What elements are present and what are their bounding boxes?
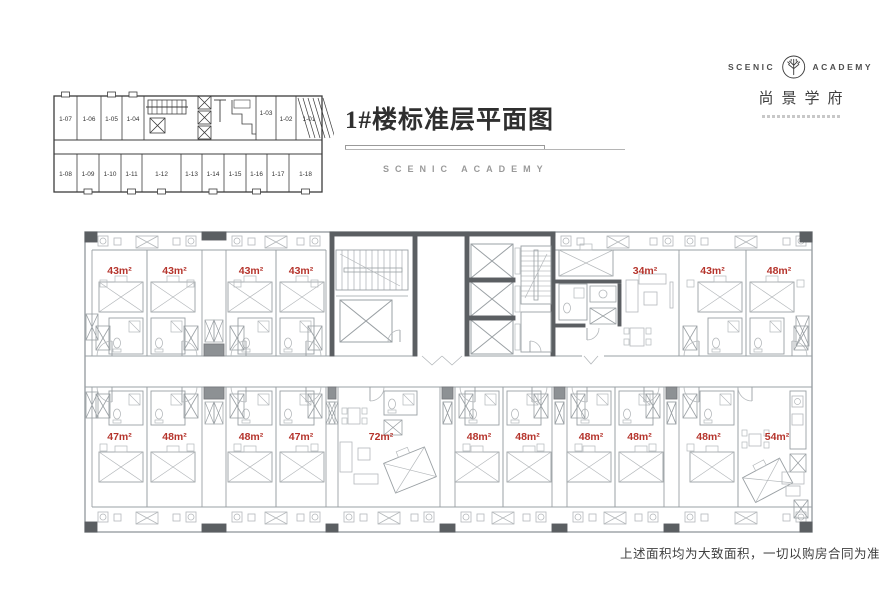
room-area-label: 54m² xyxy=(765,431,790,443)
keyplan-stair-icon xyxy=(146,100,188,114)
room-area-label: 48m² xyxy=(579,431,604,443)
balcony-strip xyxy=(232,236,320,248)
stair-b-icon xyxy=(521,246,551,304)
elevator-bank-icon xyxy=(469,244,520,354)
room-area-label: 47m² xyxy=(289,431,314,443)
balcony-strip xyxy=(98,236,196,248)
balcony-strip xyxy=(232,512,320,524)
bed-icon xyxy=(381,441,436,493)
balcony-strip xyxy=(685,512,806,524)
keyplan-unit-label: 1-03 xyxy=(260,110,273,117)
keyplan-unit-label: 1-16 xyxy=(250,171,263,178)
floor-plan: 43m²43m²43m²43m²43m²48m²47m²48m²48m²47m²… xyxy=(78,224,818,536)
balcony-strip xyxy=(685,236,806,248)
balcony-strip xyxy=(461,512,546,524)
room-area-label: 48m² xyxy=(767,265,792,277)
brand-tagline xyxy=(762,115,840,118)
balcony-strip xyxy=(561,236,673,248)
keyplan-unit-label: 1-11 xyxy=(125,171,138,178)
keyplan-unit-label: 1-09 xyxy=(82,171,95,178)
room-area-label: 48m² xyxy=(515,431,540,443)
room-area-label: 43m² xyxy=(289,265,314,277)
keyplan-unit-label: 1-07 xyxy=(59,116,72,123)
bed-icon xyxy=(740,453,793,503)
room-bottom xyxy=(226,387,276,507)
keyplan-unit-label: 1-14 xyxy=(207,171,220,178)
balcony-strip xyxy=(573,512,658,524)
disclaimer-text: 上述面积均为大致面积，一切以购房合同为准 xyxy=(620,543,880,562)
room-72 xyxy=(338,387,440,507)
keyplan-unit-label: 1-17 xyxy=(272,171,285,178)
keyplan-unit-label: 1-06 xyxy=(83,116,96,123)
tree-icon xyxy=(781,52,806,82)
keyplan-unit-label: 1-04 xyxy=(127,116,140,123)
keyplan-unit-label: 1-05 xyxy=(105,116,118,123)
room-bottom xyxy=(567,387,615,507)
keyplan-unit-label: 1-10 xyxy=(104,171,117,178)
title-block: 1#楼标准层平面图 SCENIC ACADEMY xyxy=(345,100,645,174)
brand-name-right: ACADEMY xyxy=(813,62,873,72)
keyplan-unit-label: 1-08 xyxy=(59,171,72,178)
room-bottom xyxy=(147,387,202,507)
balcony-strip xyxy=(98,512,196,524)
room-bottom xyxy=(455,387,503,507)
key-plan-drawing: 1-071-061-051-041-031-021-011-081-091-10… xyxy=(54,92,334,194)
room-area-label: 48m² xyxy=(467,431,492,443)
keyplan-unit-label: 1-18 xyxy=(299,171,312,178)
title-divider-line xyxy=(345,149,625,150)
room-area-label: 48m² xyxy=(696,431,721,443)
room-area-label: 72m² xyxy=(369,431,394,443)
room-bottom xyxy=(615,387,664,507)
room-area-label: 43m² xyxy=(162,265,187,277)
brand-name-left: SCENIC xyxy=(728,62,775,72)
page: 1-071-061-051-041-031-021-011-081-091-10… xyxy=(0,0,890,609)
room-area-label: 43m² xyxy=(239,265,264,277)
room-54 xyxy=(738,387,806,507)
room-area-label: 34m² xyxy=(633,265,658,277)
room-bottom xyxy=(503,387,552,507)
room-area-label: 43m² xyxy=(700,265,725,277)
keyplan-unit-label: 1-13 xyxy=(185,171,198,178)
floor-plan-drawing: 43m²43m²43m²43m²43m²48m²47m²48m²48m²47m²… xyxy=(85,232,812,532)
keyplan-unit-label: 1-02 xyxy=(280,116,293,123)
brand-name-cn: 尚景学府 xyxy=(728,87,873,108)
balcony-strip xyxy=(344,512,434,524)
brand-logo: SCENIC ACADEMY 尚景学府 xyxy=(728,52,873,118)
room-bottom xyxy=(276,387,326,507)
page-subtitle: SCENIC ACADEMY xyxy=(383,164,645,174)
stair-a-icon xyxy=(336,250,408,296)
room-area-label: 48m² xyxy=(162,431,187,443)
room-area-label: 43m² xyxy=(107,265,132,277)
title-divider xyxy=(345,145,625,151)
room-area-label: 47m² xyxy=(107,431,132,443)
core xyxy=(330,232,621,365)
page-title: 1#楼标准层平面图 xyxy=(345,100,645,136)
brand-logo-row: SCENIC ACADEMY xyxy=(728,52,873,82)
keyplan-unit-label: 1-15 xyxy=(229,171,242,178)
key-plan: 1-071-061-051-041-031-021-011-081-091-10… xyxy=(50,88,334,204)
keyplan-unit-label: 1-12 xyxy=(155,171,168,178)
room-area-label: 48m² xyxy=(627,431,652,443)
unit34-bath xyxy=(555,280,621,327)
room-bottom xyxy=(92,387,147,507)
room-bottom xyxy=(679,387,738,507)
room-area-label: 48m² xyxy=(239,431,264,443)
dining-set-icon xyxy=(624,328,651,346)
